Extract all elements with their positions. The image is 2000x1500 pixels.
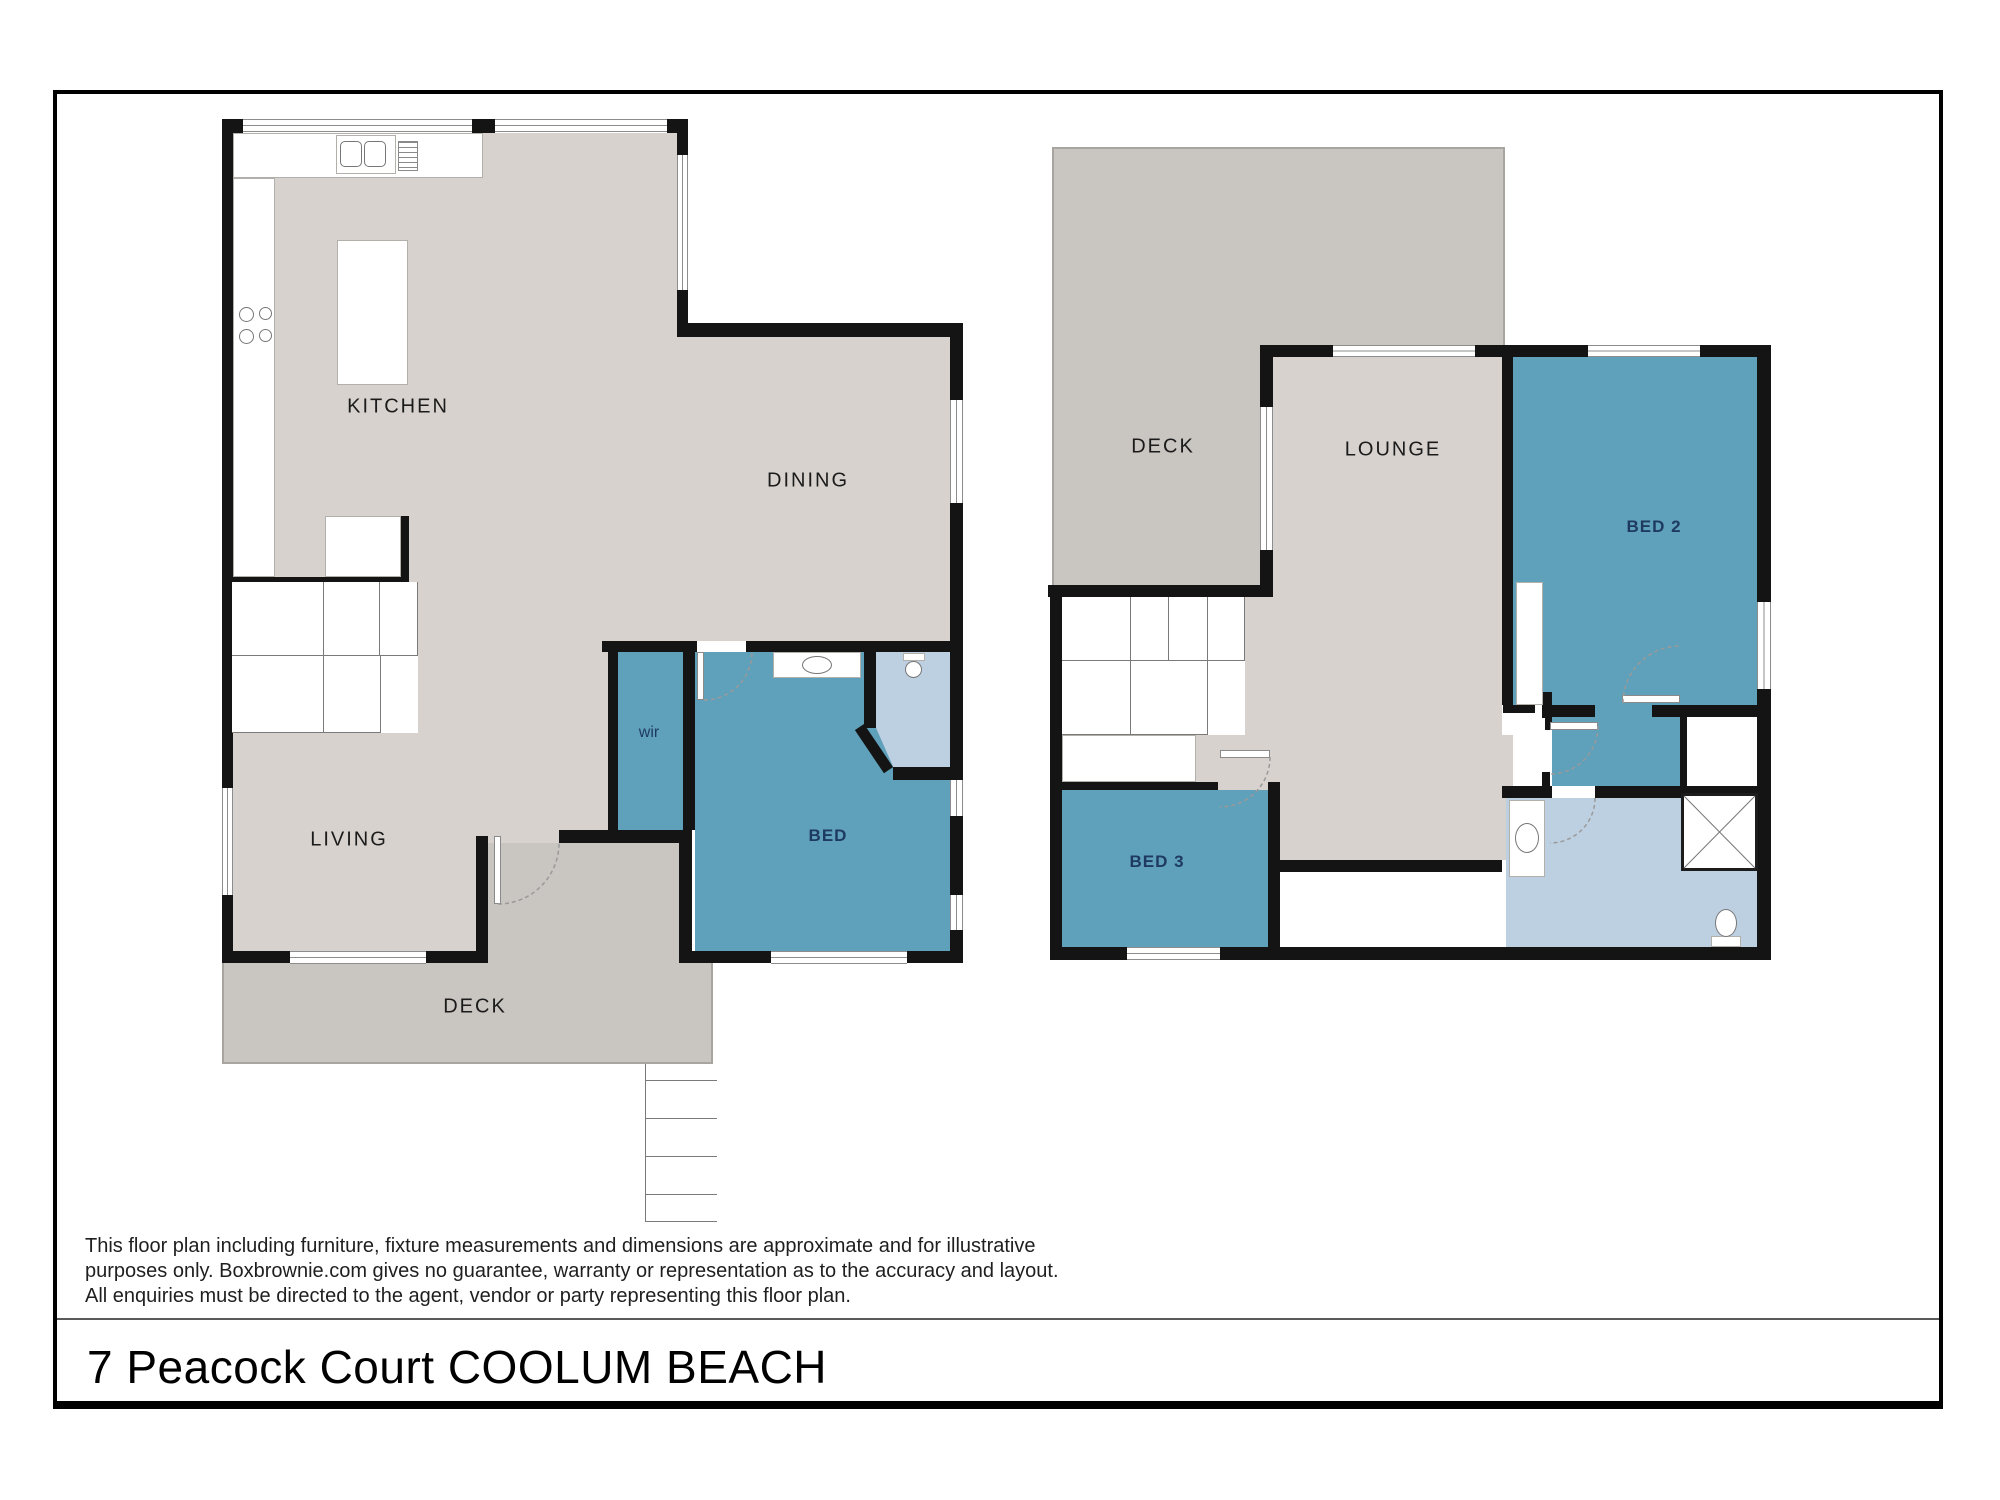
cooktop-burner [259, 307, 272, 320]
wall [472, 119, 495, 133]
deck-edge-left [222, 963, 224, 1064]
wall [950, 503, 963, 780]
wall [1268, 782, 1280, 947]
entry-porch-floor [488, 843, 679, 963]
stair-line [1207, 597, 1208, 735]
wall [1542, 772, 1550, 790]
wall [692, 951, 771, 963]
wall [222, 951, 290, 963]
pantry [325, 516, 401, 577]
living-label: LIVING [310, 829, 388, 852]
wall [679, 843, 692, 963]
wall [1050, 947, 1127, 960]
shower [1681, 793, 1758, 871]
stair-line [232, 732, 381, 733]
wall [677, 133, 688, 155]
wall [677, 323, 963, 337]
wall [222, 119, 243, 133]
window [950, 780, 963, 816]
deck-edge-bottom [222, 1062, 713, 1064]
wall [1502, 345, 1588, 357]
wall [950, 337, 963, 400]
stair-robe [1062, 735, 1196, 782]
wall [1757, 345, 1771, 602]
living-floor-lower [233, 843, 476, 951]
toilet-tank [1711, 936, 1741, 947]
window [243, 119, 472, 132]
outdoor-stair-line [645, 1118, 717, 1119]
wall [1652, 705, 1758, 717]
floorplan-page: KITCHEN DINING LIVING DECK wir BED [0, 0, 2000, 1500]
cooktop-burner [239, 307, 254, 322]
sink-bowl [340, 141, 362, 167]
stair-line [1062, 734, 1208, 735]
lounge-floor [1273, 357, 1502, 597]
entry-door-leaf [494, 836, 501, 904]
wall [907, 951, 950, 963]
stair-line [417, 582, 418, 656]
wall [401, 516, 409, 582]
disclaimer-line: All enquiries must be directed to the ag… [85, 1284, 1059, 1309]
window [1127, 947, 1220, 960]
deck-edge-right [711, 963, 713, 1064]
wall [1280, 860, 1502, 872]
stair-line [1168, 597, 1169, 660]
bed3-label: BED 3 [1129, 852, 1184, 872]
lounge-label: LOUNGE [1345, 439, 1441, 462]
toilet-bowl [1715, 909, 1737, 937]
disclaimer-line: This floor plan including furniture, fix… [85, 1234, 1059, 1259]
upper-deck-floor [1052, 147, 1505, 345]
dining-label: DINING [767, 470, 849, 493]
wall [1502, 345, 1513, 705]
wall [893, 767, 950, 780]
wall [1503, 705, 1535, 713]
wall [667, 119, 688, 133]
window [1260, 407, 1273, 550]
bed-label: BED [809, 826, 848, 846]
cooktop-burner [239, 329, 254, 344]
title-separator [57, 1318, 1939, 1320]
window [495, 119, 667, 132]
bed2-door-leaf [1622, 695, 1680, 703]
wall [864, 652, 876, 728]
window [1588, 345, 1700, 357]
hall-floor [1280, 735, 1513, 860]
page-title: 7 Peacock Court COOLUM BEACH [87, 1340, 827, 1394]
wall [1552, 705, 1595, 717]
robe-hall-door-leaf [1550, 722, 1598, 730]
window [290, 951, 426, 964]
window [677, 155, 688, 290]
bed2-robe [1516, 582, 1543, 705]
deck-edge-left [1052, 147, 1054, 585]
deck-label: DECK [443, 996, 507, 1019]
wall [1050, 585, 1062, 960]
stair-line [323, 582, 324, 733]
window [1333, 345, 1475, 357]
disclaimer: This floor plan including furniture, fix… [85, 1234, 1059, 1309]
window [1757, 602, 1771, 689]
wall [559, 830, 692, 843]
outdoor-stair-line [645, 1080, 717, 1081]
stair-line [380, 655, 381, 733]
outdoor-stair-line [645, 1221, 717, 1222]
stair-line [1130, 597, 1131, 735]
closet-floor [1687, 717, 1755, 787]
disclaimer-line: purposes only. Boxbrownie.com gives no g… [85, 1259, 1059, 1284]
deck-edge-right [1503, 147, 1505, 347]
window [950, 895, 963, 930]
wall [683, 652, 695, 830]
window [771, 951, 907, 964]
window [950, 400, 963, 503]
cooktop-burner [259, 329, 272, 342]
wall [608, 641, 618, 843]
wall [1260, 550, 1273, 597]
stairs-ground [232, 582, 418, 733]
wall [476, 836, 488, 963]
wall [950, 930, 963, 963]
wall [1220, 947, 1771, 960]
bed2-label: BED 2 [1626, 517, 1681, 537]
outdoor-stair-line [645, 1064, 646, 1222]
sink-drainer [398, 141, 418, 171]
wall [1260, 345, 1273, 407]
wall [1062, 782, 1218, 790]
wall [1048, 585, 1272, 597]
stair-line [1244, 597, 1245, 660]
outdoor-stair-line [645, 1156, 717, 1157]
stair-line [379, 582, 380, 655]
wall [1680, 705, 1687, 790]
hall-floor [1245, 597, 1502, 735]
kitchen-island [337, 240, 408, 385]
basin [1515, 823, 1539, 853]
sink-bowl [364, 141, 386, 167]
stairs-upper [1062, 597, 1245, 735]
kitchen-label: KITCHEN [347, 396, 449, 419]
wall [1475, 345, 1502, 357]
kitchen-bench-left [233, 178, 275, 577]
toilet-bowl [905, 661, 922, 678]
bed-door-leaf [697, 652, 704, 700]
stair-line [232, 655, 418, 656]
upper-deck-floor-arm [1052, 345, 1260, 585]
toilet-tank [903, 653, 925, 661]
wir-label: wir [639, 724, 659, 742]
stair-line [1062, 660, 1245, 661]
outdoor-stair-line [645, 1194, 717, 1195]
window [222, 788, 233, 895]
wall [1757, 689, 1771, 960]
upper-deck-label: DECK [1131, 436, 1195, 459]
bed3-door-leaf [1220, 750, 1270, 758]
wall [950, 816, 963, 895]
basin [802, 656, 832, 674]
deck-edge-top [1052, 147, 1505, 149]
wall [746, 641, 950, 652]
